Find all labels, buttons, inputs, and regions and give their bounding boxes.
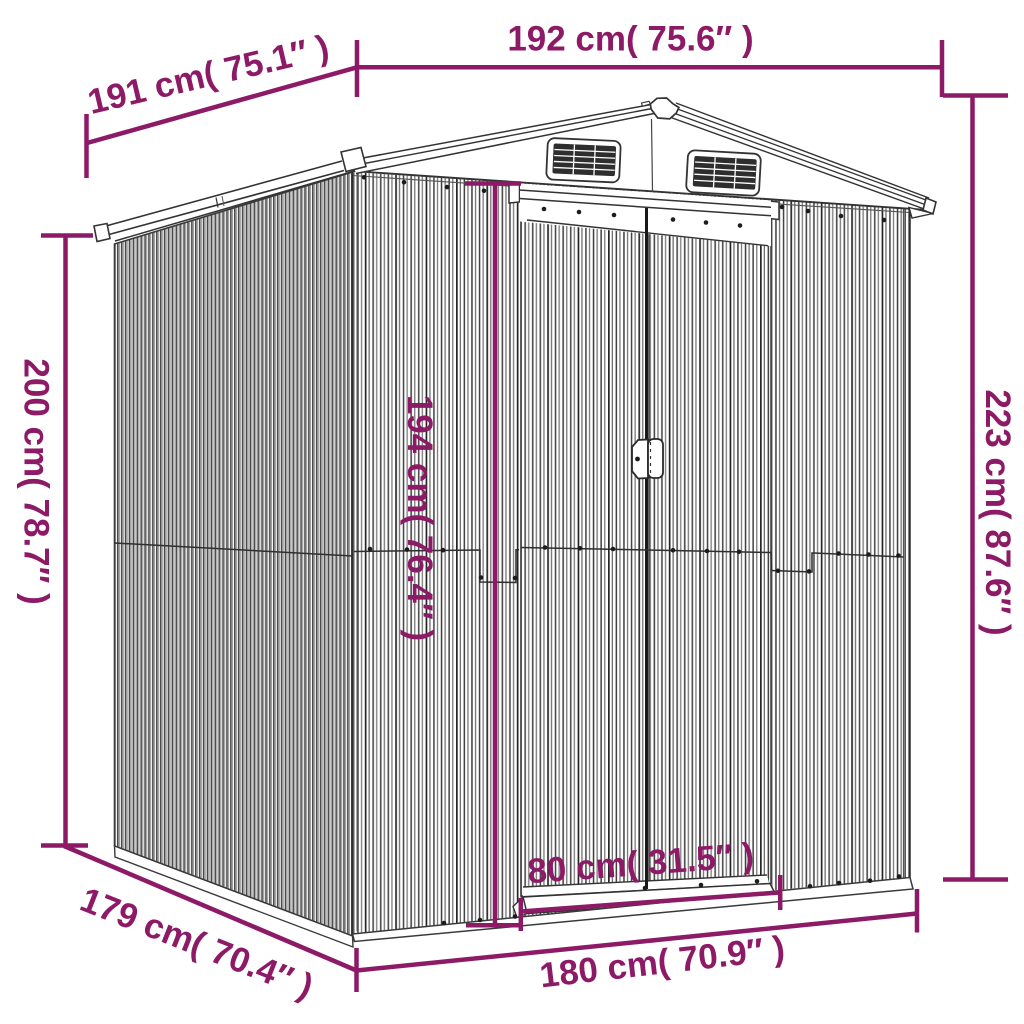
- svg-text:223 cm( 87.6″ ): 223 cm( 87.6″ ): [978, 389, 1017, 635]
- svg-text:192 cm( 75.6″ ): 192 cm( 75.6″ ): [507, 20, 753, 59]
- svg-text:194 cm( 76.4″ ): 194 cm( 76.4″ ): [400, 395, 439, 641]
- svg-text:200 cm( 78.7″ ): 200 cm( 78.7″ ): [17, 358, 56, 604]
